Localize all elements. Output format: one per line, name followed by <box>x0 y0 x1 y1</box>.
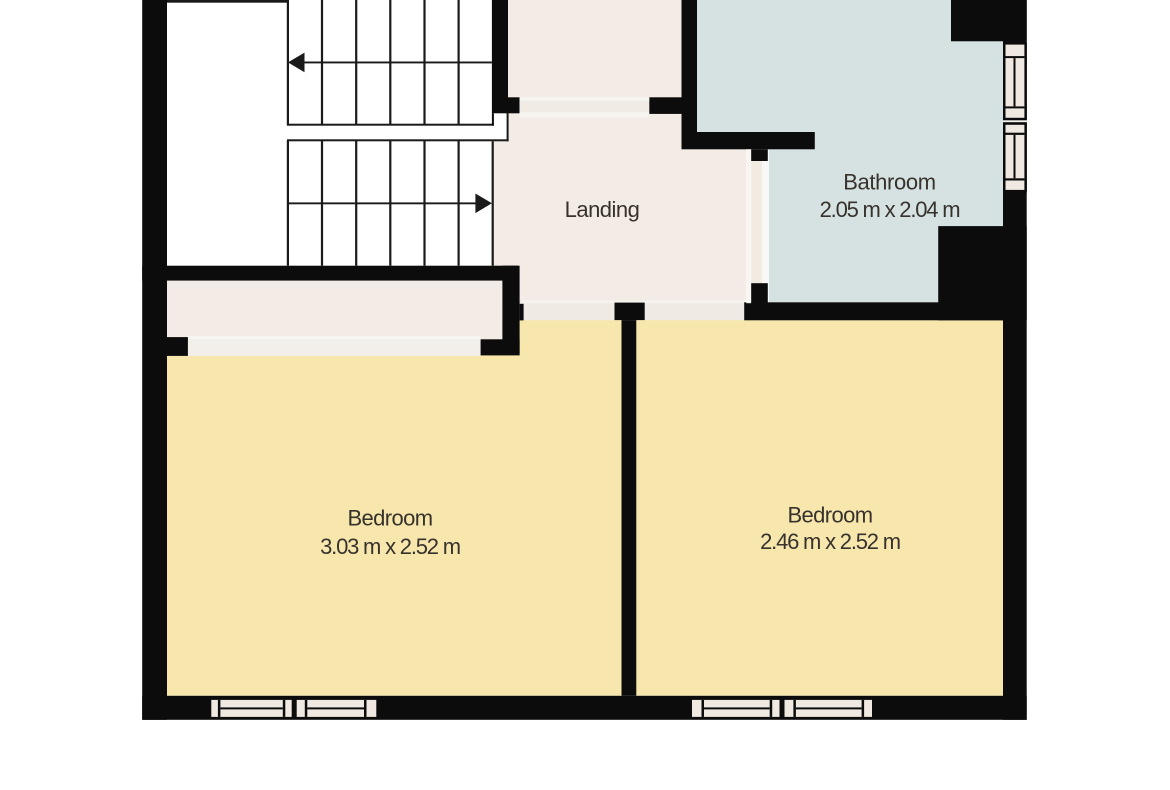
svg-text:Bedroom: Bedroom <box>347 506 432 531</box>
svg-text:3.03 m x 2.52 m: 3.03 m x 2.52 m <box>320 534 460 559</box>
svg-text:2.46 m x 2.52 m: 2.46 m x 2.52 m <box>760 529 900 554</box>
svg-text:2.05 m x 2.04 m: 2.05 m x 2.04 m <box>820 197 960 222</box>
svg-text:Landing: Landing <box>565 197 640 222</box>
svg-text:Bedroom: Bedroom <box>787 502 872 527</box>
svg-text:Bathroom: Bathroom <box>843 170 936 195</box>
